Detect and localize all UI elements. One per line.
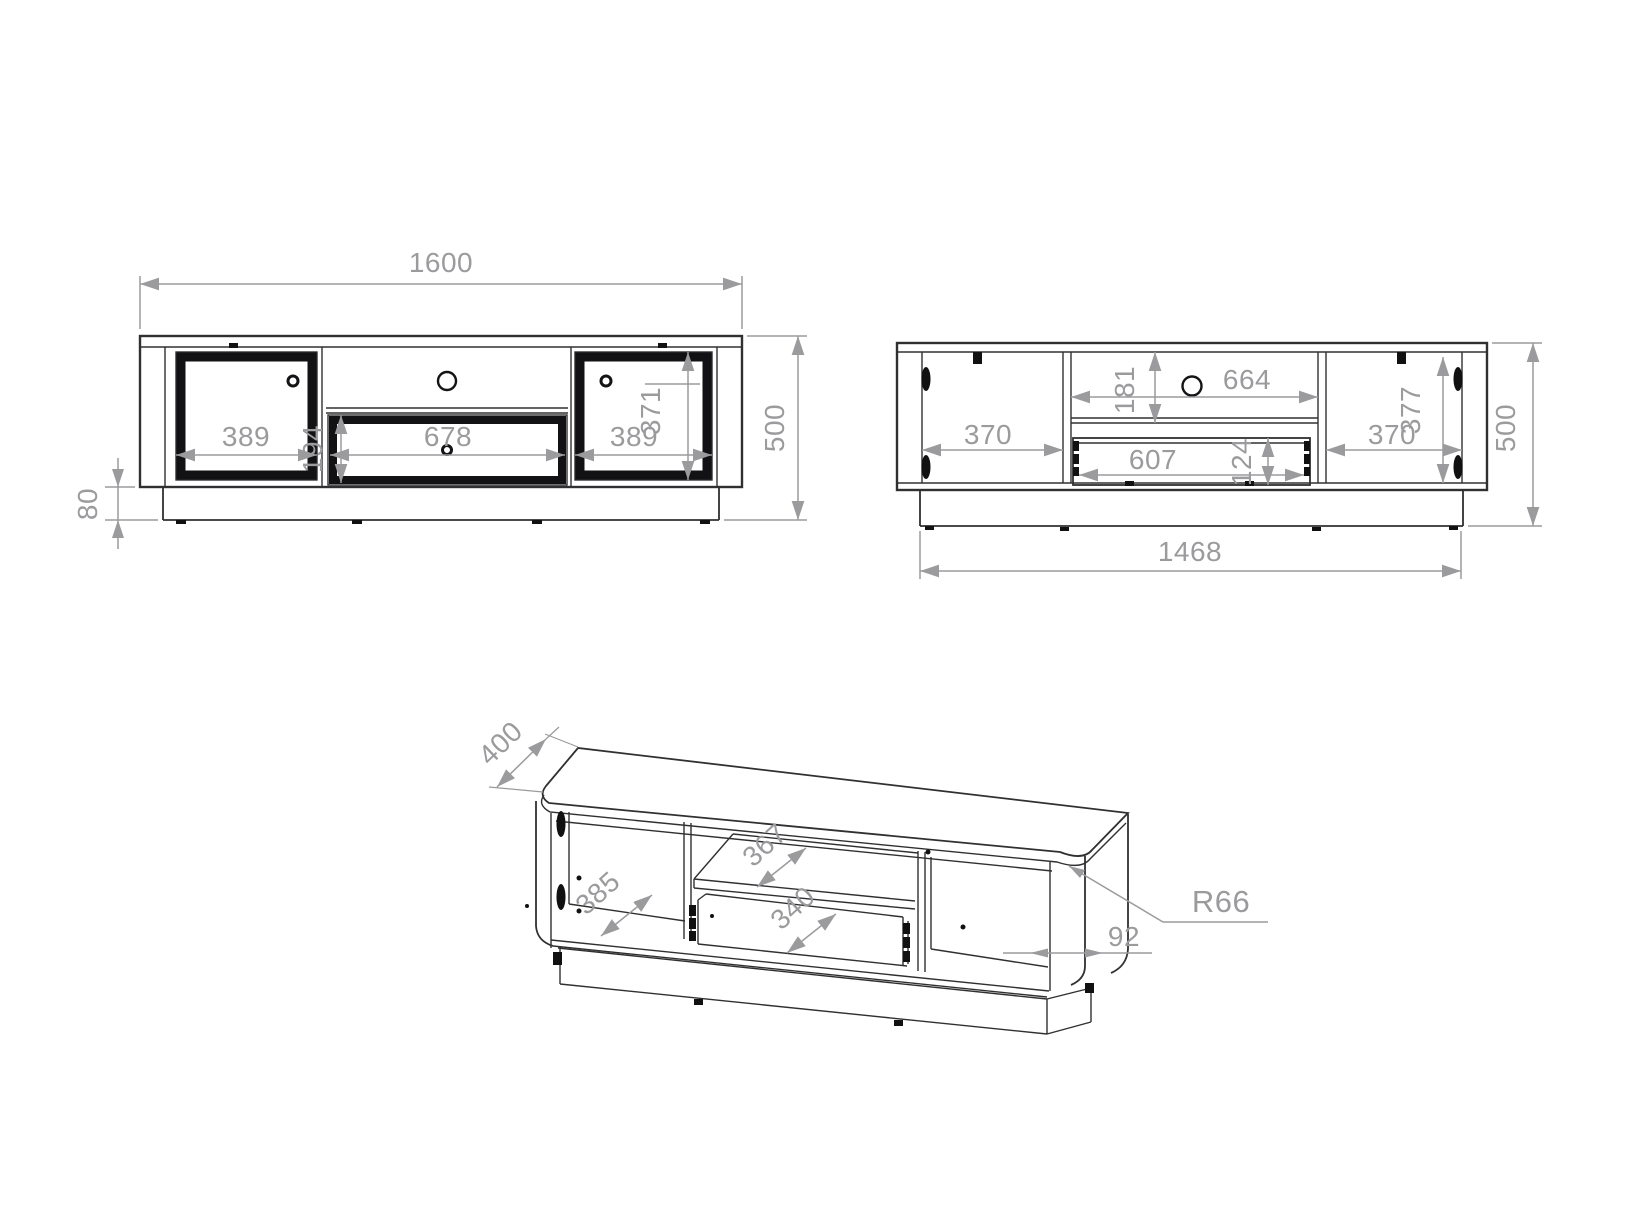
- drawing-svg: 1600 500 80 389 678 389 194 371: [0, 0, 1637, 1227]
- iso-foot: [694, 999, 703, 1005]
- technical-drawing-canvas: 1600 500 80 389 678 389 194 371: [0, 0, 1637, 1227]
- arrow-icon: [1085, 949, 1103, 958]
- dim-back-width: 1468: [1158, 536, 1222, 567]
- door-clip-icon: [658, 343, 667, 348]
- back-foot: [1312, 527, 1321, 531]
- drawer-runner-icon: [689, 931, 696, 941]
- fitting-dot: [961, 925, 966, 930]
- dim-niche-height: 181: [1109, 366, 1140, 414]
- drawer-runner-icon: [1073, 467, 1079, 476]
- dim-back-height: 500: [1490, 404, 1521, 452]
- fitting-dot: [926, 850, 931, 855]
- back-foot: [1449, 526, 1458, 530]
- iso-foot: [1085, 983, 1094, 993]
- front-foot: [352, 520, 362, 524]
- ext-lines-80: [105, 487, 158, 520]
- arrow-icon: [112, 520, 124, 538]
- front-left-door-outline: [176, 352, 317, 480]
- front-foot: [700, 520, 710, 524]
- door-clip-icon: [1397, 352, 1406, 364]
- fitting-dot: [577, 876, 582, 881]
- hinge-icon: [1454, 367, 1463, 391]
- drawer-runner-icon: [1073, 454, 1079, 464]
- drawer-runner-icon: [903, 923, 910, 934]
- cable-hole-icon: [1183, 377, 1202, 396]
- iso-divider-right: [918, 851, 925, 972]
- isometric-view: 400 385 367 340 92 R66: [472, 715, 1268, 1034]
- dim-corner-radius: R66: [1192, 884, 1250, 919]
- hinge-icon: [557, 884, 566, 910]
- dim-depth: 400: [472, 715, 528, 771]
- dim-plinth-height: 80: [72, 488, 103, 520]
- back-view: 370 664 181 607 124 370 377 500 1468: [897, 343, 1542, 579]
- arrow-icon: [1030, 949, 1048, 958]
- back-drawer-outline: [1073, 438, 1310, 485]
- arrow-icon: [1069, 866, 1085, 878]
- back-shelf-line: [1071, 418, 1318, 423]
- drawer-runner-icon: [1304, 454, 1310, 464]
- front-plinth: [163, 487, 719, 520]
- iso-foot: [894, 1020, 903, 1026]
- iso-opening-top: [556, 821, 1052, 871]
- front-shelf-line: [326, 408, 568, 413]
- dim-drawer-width: 678: [424, 421, 472, 452]
- drawer-runner-icon: [1073, 441, 1079, 451]
- hinge-icon: [557, 811, 566, 837]
- dim-front-height: 500: [759, 404, 790, 452]
- dim-back-drawer-height: 124: [1226, 438, 1257, 486]
- dim-drawer-depth: 340: [764, 880, 821, 935]
- drawer-runner-icon: [903, 937, 910, 948]
- dim-side-panel-width: 92: [1108, 921, 1140, 952]
- back-foot: [925, 526, 934, 530]
- drawer-clip-icon: [1125, 481, 1134, 486]
- iso-foot: [553, 952, 562, 965]
- left-door-knob-icon: [288, 376, 298, 386]
- arrow-icon: [112, 469, 124, 487]
- hinge-icon: [922, 367, 931, 391]
- drawer-runner-icon: [1304, 467, 1310, 476]
- hinge-icon: [922, 455, 931, 479]
- dim-back-drawer-width: 607: [1129, 444, 1177, 475]
- cable-hole-icon: [438, 372, 456, 390]
- drawer-runner-icon: [689, 905, 696, 916]
- right-door-knob-icon: [601, 376, 611, 386]
- dim-front-width: 1600: [409, 247, 473, 278]
- front-foot: [532, 520, 542, 524]
- iso-right-compartment-interior: [931, 857, 1048, 967]
- dim-left-door-width: 389: [222, 421, 270, 452]
- dim-inner-height: 377: [1395, 386, 1426, 434]
- dim-niche-width: 664: [1223, 364, 1271, 395]
- hinge-icon: [1454, 455, 1463, 479]
- back-foot: [1060, 527, 1069, 531]
- back-plinth: [920, 490, 1463, 526]
- fitting-dot: [525, 904, 529, 908]
- drawer-runner-icon: [903, 951, 910, 962]
- door-clip-icon: [229, 343, 238, 348]
- drawer-runner-icon: [689, 918, 696, 929]
- iso-bottom-panel: [551, 940, 1049, 997]
- fitting-dot: [710, 914, 714, 918]
- drawer-runner-icon: [1304, 441, 1310, 451]
- dim-left-compartment: 370: [964, 419, 1012, 450]
- front-view: 1600 500 80 389 678 389 194 371: [72, 247, 807, 549]
- dim-drawer-height: 194: [297, 425, 328, 473]
- door-clip-icon: [973, 352, 982, 364]
- dim-door-height: 371: [635, 387, 666, 435]
- front-foot: [176, 520, 186, 524]
